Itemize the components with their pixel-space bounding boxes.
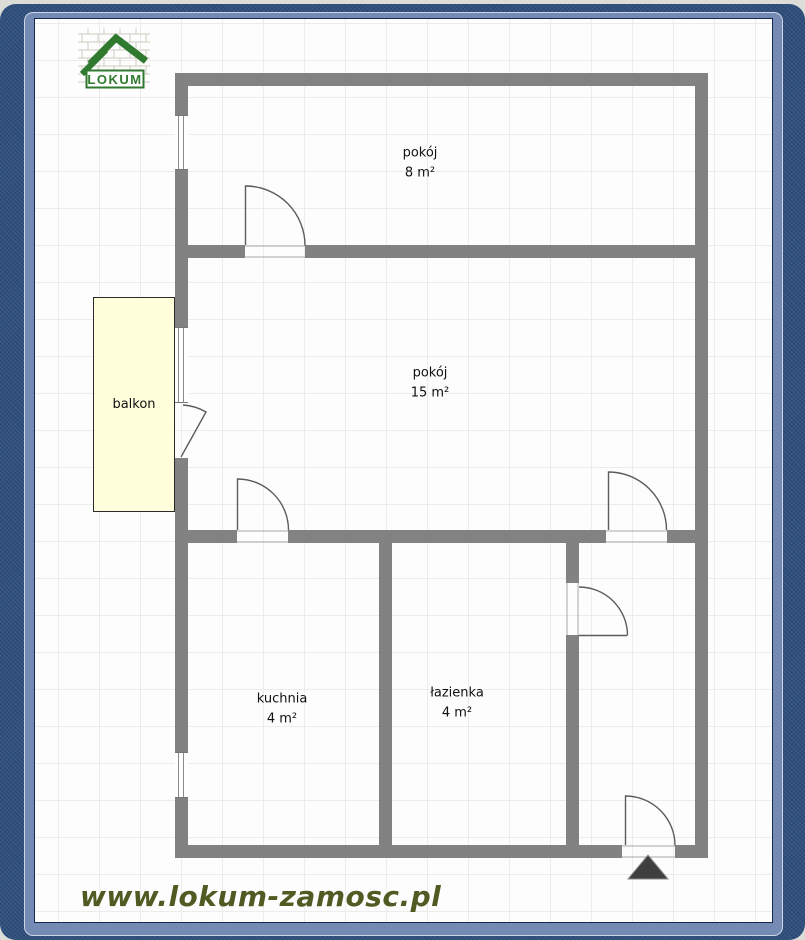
floorplan-image: { "branding": { "logo_text": "LOKUM", "w… — [0, 0, 805, 940]
lokum-logo: LOKUM — [76, 28, 152, 90]
logo-text: LOKUM — [87, 72, 142, 87]
room-name: balkon — [112, 397, 155, 412]
balcony: balkon — [93, 297, 175, 512]
website-text: www.lokum-zamosc.pl — [80, 880, 441, 913]
